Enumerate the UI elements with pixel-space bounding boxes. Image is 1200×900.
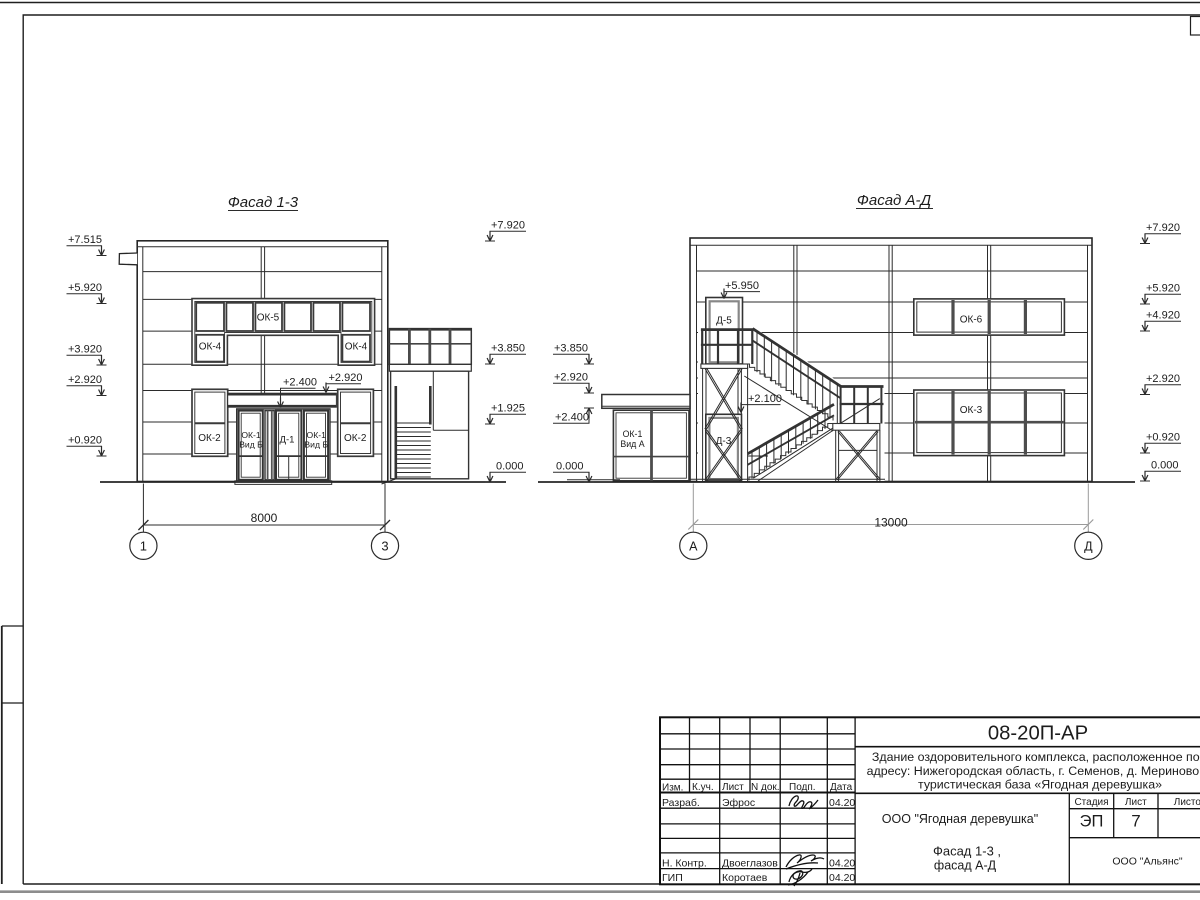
svg-text:ОК-1: ОК-1: [241, 430, 261, 440]
svg-text:ОК-4: ОК-4: [199, 342, 222, 353]
svg-text:8000: 8000: [251, 511, 278, 525]
svg-text:+2.100: +2.100: [748, 393, 782, 405]
svg-text:Д-5: Д-5: [716, 316, 732, 327]
svg-text:ГИП: ГИП: [662, 872, 683, 884]
svg-text:Д: Д: [1084, 539, 1093, 553]
svg-text:ОК-5: ОК-5: [257, 312, 280, 323]
svg-text:04.20: 04.20: [829, 858, 855, 870]
svg-text:А: А: [689, 539, 698, 553]
svg-text:08-20П-АР: 08-20П-АР: [988, 723, 1088, 745]
svg-text:04.20: 04.20: [829, 872, 855, 884]
svg-text:Вид Б: Вид Б: [304, 439, 328, 449]
svg-text:ОК-3: ОК-3: [960, 405, 983, 416]
svg-text:+7.515: +7.515: [68, 234, 102, 246]
svg-text:Здание оздоровительного компле: Здание оздоровительного комплекса, распо…: [872, 750, 1200, 764]
svg-text:ОК-2: ОК-2: [198, 433, 221, 444]
svg-text:+0.920: +0.920: [68, 435, 102, 447]
svg-text:ОК-6: ОК-6: [960, 315, 983, 326]
svg-text:Двоеглазов: Двоеглазов: [722, 858, 778, 870]
svg-text:Лист: Лист: [722, 782, 744, 793]
svg-text:+5.920: +5.920: [68, 282, 102, 294]
svg-text:туристическая база «Ягодная де: туристическая база «Ягодная деревушка»: [918, 778, 1162, 792]
svg-text:+7.920: +7.920: [1146, 222, 1180, 234]
svg-text:+7.920: +7.920: [491, 220, 525, 232]
svg-text:ОК-4: ОК-4: [345, 342, 368, 353]
svg-text:N док.: N док.: [751, 782, 780, 793]
svg-text:Фасад 1-3: Фасад 1-3: [228, 194, 299, 211]
svg-text:Лист: Лист: [1125, 797, 1147, 808]
svg-text:Д-1: Д-1: [279, 434, 294, 445]
svg-text:+2.920: +2.920: [554, 372, 588, 384]
svg-text:0.000: 0.000: [1151, 460, 1179, 472]
svg-text:+3.920: +3.920: [68, 344, 102, 356]
svg-text:+4.920: +4.920: [1146, 310, 1180, 322]
svg-text:адресу: Нижегородская область,: адресу: Нижегородская область, г. Семено…: [867, 764, 1200, 778]
svg-text:0.000: 0.000: [496, 461, 524, 473]
svg-text:Дата: Дата: [830, 782, 853, 793]
svg-text:ООО "Альянс": ООО "Альянс": [1112, 856, 1182, 868]
svg-text:Фасад А-Д: Фасад А-Д: [857, 192, 932, 209]
svg-text:ООО "Ягодная деревушка": ООО "Ягодная деревушка": [882, 812, 1038, 826]
svg-text:Разраб.: Разраб.: [662, 797, 700, 809]
svg-text:+2.400: +2.400: [283, 377, 317, 389]
svg-text:ОК-2: ОК-2: [344, 433, 367, 444]
svg-text:+1.925: +1.925: [491, 403, 525, 415]
svg-text:фасад А-Д: фасад А-Д: [934, 859, 997, 873]
svg-text:ОК-1: ОК-1: [623, 429, 643, 439]
svg-text:13000: 13000: [874, 516, 908, 530]
svg-text:Вид Б: Вид Б: [239, 439, 263, 449]
svg-text:3: 3: [381, 539, 388, 554]
svg-text:+5.950: +5.950: [725, 280, 759, 292]
svg-text:Эфрос: Эфрос: [722, 797, 755, 809]
svg-text:+2.920: +2.920: [329, 372, 363, 384]
svg-text:Стадия: Стадия: [1074, 797, 1108, 808]
svg-text:04.20: 04.20: [829, 797, 855, 809]
svg-text:Вид А: Вид А: [620, 439, 644, 449]
svg-text:+2.920: +2.920: [68, 374, 102, 386]
svg-text:0.000: 0.000: [556, 461, 584, 473]
svg-text:+0.920: +0.920: [1146, 432, 1180, 444]
svg-text:Коротаев: Коротаев: [722, 872, 768, 884]
svg-text:Фасад 1-3 ,: Фасад 1-3 ,: [933, 844, 1001, 859]
svg-text:Н. Контр.: Н. Контр.: [662, 858, 707, 870]
svg-text:ОК-1: ОК-1: [307, 430, 327, 440]
svg-text:+2.920: +2.920: [1146, 373, 1180, 385]
svg-text:Изм.: Изм.: [662, 783, 683, 794]
svg-text:Подп.: Подп.: [789, 782, 816, 793]
svg-text:+2.400: +2.400: [555, 412, 589, 424]
svg-text:К.уч.: К.уч.: [692, 782, 714, 793]
svg-text:+3.850: +3.850: [491, 343, 525, 355]
svg-text:1: 1: [140, 539, 147, 554]
svg-text:+3.850: +3.850: [554, 343, 588, 355]
svg-text:+5.920: +5.920: [1146, 283, 1180, 295]
svg-text:ЭП: ЭП: [1080, 813, 1104, 831]
svg-text:Листов: Листов: [1174, 797, 1200, 808]
svg-text:7: 7: [1131, 812, 1140, 831]
